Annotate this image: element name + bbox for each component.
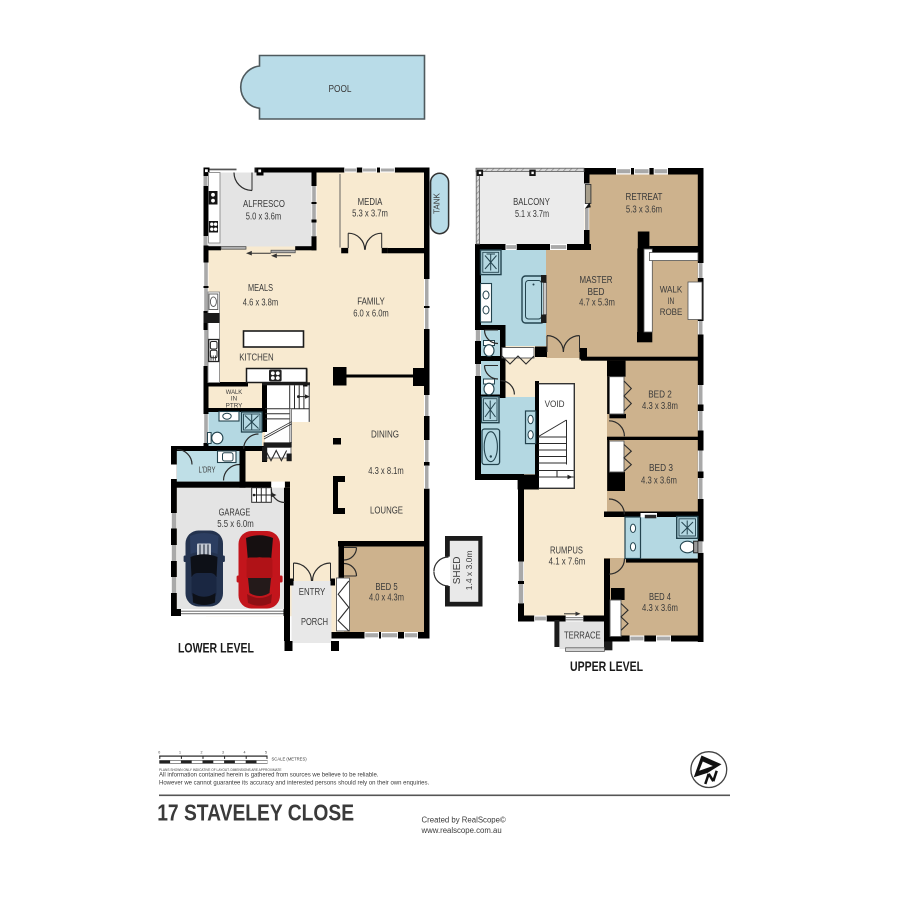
- svg-text:L'DRY: L'DRY: [199, 466, 216, 475]
- svg-text:TERRACE: TERRACE: [564, 631, 601, 642]
- svg-text:5.5 x 6.0m: 5.5 x 6.0m: [217, 519, 254, 530]
- svg-text:MASTER: MASTER: [580, 275, 613, 286]
- svg-text:5: 5: [265, 751, 267, 755]
- svg-text:All information contained here: All information contained herein is gath…: [159, 773, 379, 779]
- svg-text:4.3 x 3.6m: 4.3 x 3.6m: [642, 603, 678, 614]
- svg-text:www.realscope.com.au: www.realscope.com.au: [421, 826, 502, 835]
- svg-text:MEALS: MEALS: [248, 283, 273, 294]
- svg-text:PLANS SHOWN ONLY INDICATIVE OF: PLANS SHOWN ONLY INDICATIVE OF LAYOUT. D…: [159, 768, 281, 772]
- svg-text:FAMILY: FAMILY: [357, 296, 385, 307]
- svg-text:WALK: WALK: [660, 285, 683, 296]
- svg-text:BED 4: BED 4: [649, 592, 671, 603]
- svg-text:However we cannot guarantee it: However we cannot guarantee its accuracy…: [159, 780, 429, 786]
- svg-text:1.4 x 3.0m: 1.4 x 3.0m: [464, 551, 474, 591]
- svg-text:ROBE: ROBE: [660, 307, 683, 318]
- svg-text:1: 1: [179, 751, 181, 755]
- svg-text:PTRY: PTRY: [226, 402, 243, 409]
- svg-text:0: 0: [158, 751, 160, 755]
- svg-text:POOL: POOL: [329, 84, 352, 95]
- svg-text:Created by RealScope©: Created by RealScope©: [422, 816, 506, 825]
- svg-text:SCALE (METRES): SCALE (METRES): [272, 757, 308, 762]
- svg-text:4: 4: [244, 751, 246, 755]
- svg-text:TANK: TANK: [433, 192, 442, 213]
- svg-text:6.0 x 6.0m: 6.0 x 6.0m: [353, 309, 389, 320]
- svg-text:RETREAT: RETREAT: [626, 192, 663, 203]
- svg-text:PORCH: PORCH: [301, 617, 328, 628]
- svg-text:RUMPUS: RUMPUS: [550, 546, 583, 557]
- svg-text:17 STAVELEY CLOSE: 17 STAVELEY CLOSE: [157, 800, 354, 826]
- svg-text:5.3 x 3.6m: 5.3 x 3.6m: [626, 205, 662, 216]
- svg-text:LOWER LEVEL: LOWER LEVEL: [178, 640, 255, 656]
- svg-text:3: 3: [222, 751, 224, 755]
- svg-text:IN: IN: [668, 296, 675, 307]
- svg-text:VOID: VOID: [545, 399, 565, 410]
- svg-text:BED 2: BED 2: [648, 390, 672, 401]
- svg-text:BED: BED: [588, 287, 605, 298]
- svg-text:MEDIA: MEDIA: [358, 197, 383, 208]
- svg-text:4.3 x 3.6m: 4.3 x 3.6m: [641, 476, 677, 487]
- svg-text:GARAGE: GARAGE: [219, 508, 251, 519]
- svg-text:4.3 x 3.8m: 4.3 x 3.8m: [642, 401, 678, 412]
- svg-text:KITCHEN: KITCHEN: [239, 353, 273, 364]
- svg-text:4.6 x 3.8m: 4.6 x 3.8m: [243, 298, 278, 309]
- svg-text:4.3 x 8.1m: 4.3 x 8.1m: [368, 466, 404, 477]
- svg-text:5.3 x 3.7m: 5.3 x 3.7m: [352, 209, 388, 220]
- svg-text:4.7 x 5.3m: 4.7 x 5.3m: [579, 298, 615, 309]
- svg-text:SHED: SHED: [452, 557, 463, 585]
- svg-text:4.1 x 7.6m: 4.1 x 7.6m: [549, 557, 586, 568]
- svg-text:5.1 x 3.7m: 5.1 x 3.7m: [515, 209, 549, 220]
- svg-text:5.0 x 3.6m: 5.0 x 3.6m: [246, 212, 281, 223]
- svg-text:4.0 x 4.3m: 4.0 x 4.3m: [369, 593, 404, 604]
- svg-text:BALCONY: BALCONY: [513, 197, 550, 208]
- svg-text:BED 5: BED 5: [375, 582, 398, 593]
- svg-text:2: 2: [201, 751, 203, 755]
- svg-text:ENTRY: ENTRY: [299, 587, 326, 598]
- svg-text:BED 3: BED 3: [649, 463, 673, 474]
- svg-text:LOUNGE: LOUNGE: [370, 506, 403, 517]
- svg-text:UPPER LEVEL: UPPER LEVEL: [570, 659, 644, 675]
- svg-text:DINING: DINING: [371, 430, 399, 441]
- svg-text:ALFRESCO: ALFRESCO: [243, 199, 285, 210]
